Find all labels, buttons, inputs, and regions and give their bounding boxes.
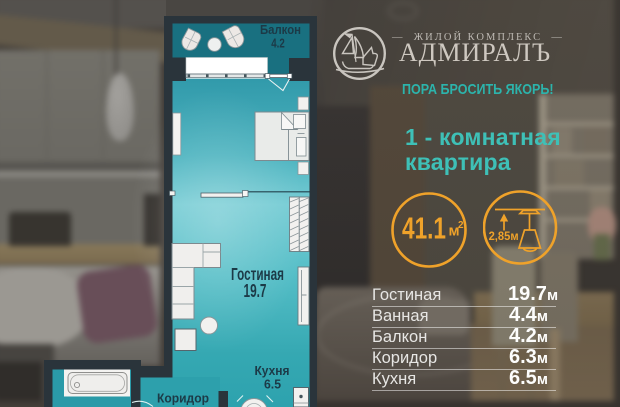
svg-text:2: 2 xyxy=(458,220,464,231)
svg-text:41.1: 41.1 xyxy=(402,211,446,246)
svg-text:2,85м: 2,85м xyxy=(489,231,519,243)
svg-text:6.5: 6.5 xyxy=(264,377,281,392)
svg-text:4.2: 4.2 xyxy=(271,36,285,51)
svg-text:Коридор: Коридор xyxy=(157,391,209,406)
svg-text:19.7: 19.7 xyxy=(244,281,267,301)
